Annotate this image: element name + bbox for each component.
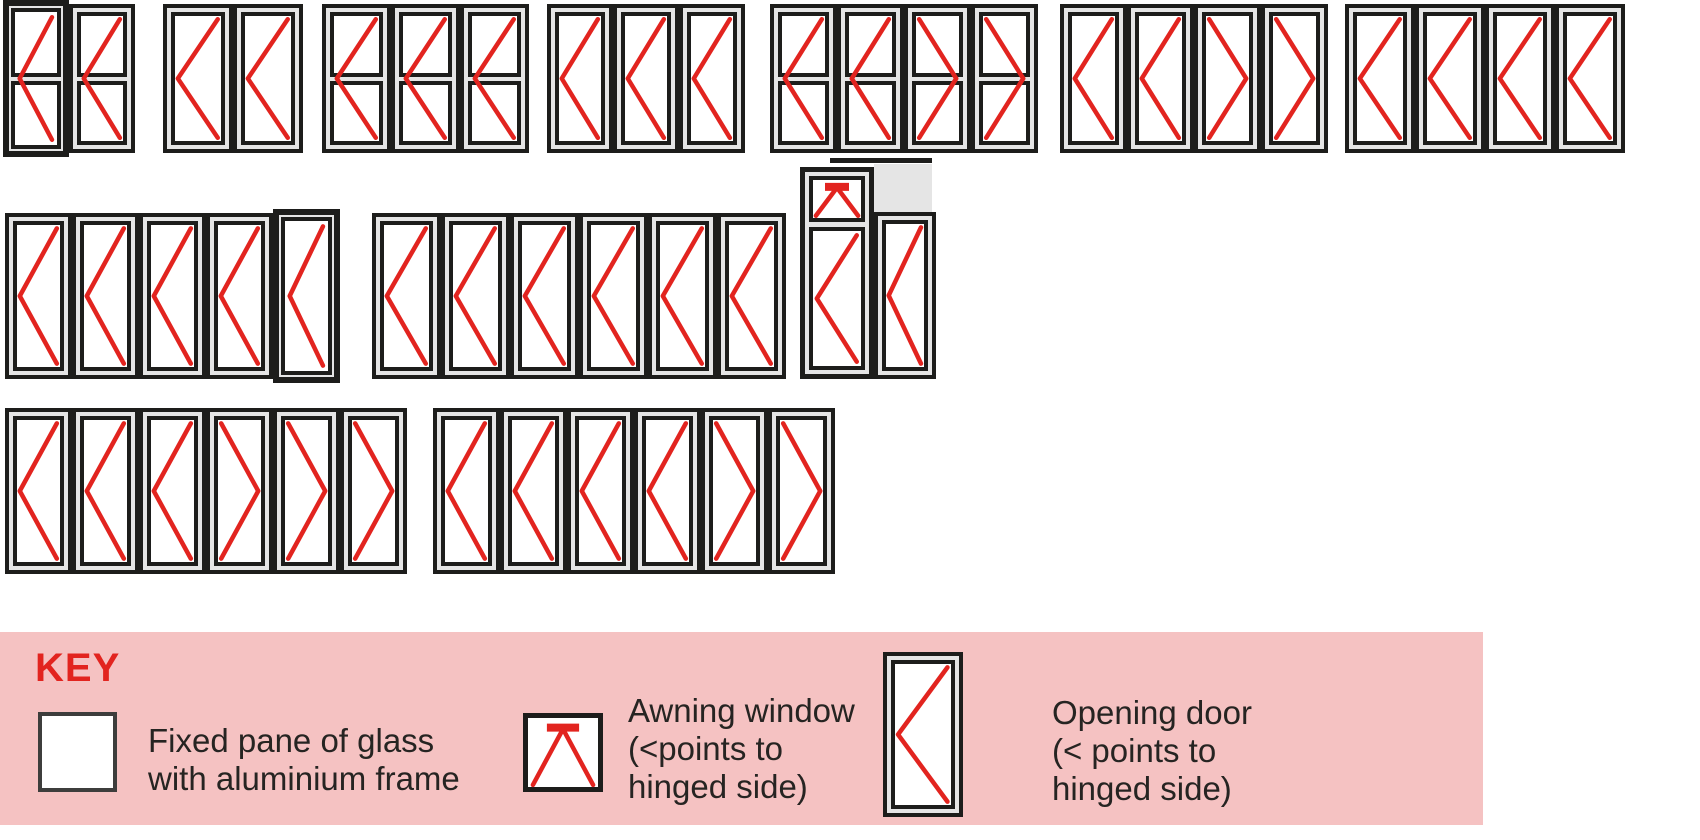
door-panel-hinge-left xyxy=(5,213,72,379)
label-line: with aluminium frame xyxy=(148,760,460,798)
opening-direction-chevron xyxy=(19,16,53,141)
door-panel-hinge-right xyxy=(768,408,835,574)
door-panel-hinge-left xyxy=(717,213,786,379)
opening-direction-chevron xyxy=(83,18,121,139)
awning-window xyxy=(809,176,865,222)
door-panel-hinge-left xyxy=(273,209,340,383)
door-panel-hinge-left xyxy=(322,4,391,153)
door-panel-hinge-right xyxy=(340,408,407,574)
opening-direction-chevron xyxy=(1141,18,1180,139)
toplight-frame-bar xyxy=(830,158,932,163)
door-panel-hinge-left xyxy=(233,4,303,153)
awning-symbol-icon xyxy=(528,718,598,787)
opening-direction-chevron xyxy=(593,227,634,365)
awning-window-label: Awning window (<points to hinged side) xyxy=(628,692,855,806)
door-panel-hinge-left xyxy=(770,4,837,153)
door-panel-hinge-left xyxy=(510,213,579,379)
opening-direction-chevron xyxy=(985,18,1024,139)
opening-direction-chevron xyxy=(1429,18,1471,139)
opening-direction-chevron xyxy=(1074,18,1113,139)
opening-direction-chevron xyxy=(177,18,219,139)
label-line: hinged side) xyxy=(628,768,855,806)
configuration-awning-unit-right-door xyxy=(874,212,936,379)
door-panel-hinge-left xyxy=(809,227,865,370)
opening-direction-chevron xyxy=(715,422,754,560)
opening-direction-chevron xyxy=(731,227,772,365)
door-panel-hinge-left xyxy=(1127,4,1194,153)
door-panel-hinge-left xyxy=(163,4,233,153)
opening-direction-chevron xyxy=(247,18,289,139)
opening-direction-chevron xyxy=(220,227,259,365)
opening-direction-chevron xyxy=(289,225,324,367)
label-line: (< points to xyxy=(1052,732,1252,770)
door-panel-hinge-left xyxy=(883,652,963,817)
door-panel-hinge-left xyxy=(460,4,529,153)
opening-direction-chevron xyxy=(561,18,599,139)
door-panel-hinge-left xyxy=(874,212,936,379)
opening-direction-chevron xyxy=(354,422,393,560)
fixed-aluminium-panel xyxy=(874,164,932,212)
opening-door-symbol xyxy=(883,652,963,817)
opening-direction-chevron xyxy=(405,18,446,139)
opening-direction-chevron xyxy=(153,422,192,560)
label-line: hinged side) xyxy=(1052,770,1252,808)
door-configurations-diagram: KEY Fixed pane of glass with aluminium f… xyxy=(0,0,1700,840)
door-panel-hinge-left xyxy=(441,213,510,379)
door-panel-hinge-left xyxy=(547,4,613,153)
door-panel-hinge-left xyxy=(433,408,500,574)
awning-window-symbol xyxy=(523,713,603,792)
opening-direction-chevron xyxy=(220,422,259,560)
opening-direction-chevron xyxy=(153,227,192,365)
opening-direction-chevron xyxy=(1499,18,1541,139)
door-panel-hinge-left xyxy=(500,408,567,574)
fixed-pane-label: Fixed pane of glass with aluminium frame xyxy=(148,722,460,798)
configuration-2-door-both-left xyxy=(163,4,303,153)
configuration-3-door-midrail-all-left xyxy=(322,4,529,153)
opening-direction-chevron xyxy=(851,18,890,139)
door-panel-hinge-left xyxy=(72,213,139,379)
configuration-2-door-midrail-both-left xyxy=(3,4,135,153)
door-panel-hinge-right xyxy=(904,4,971,153)
configuration-6-door-4-left-2-right xyxy=(433,408,835,574)
door-panel-hinge-left xyxy=(3,0,69,157)
door-panel-hinge-left xyxy=(391,4,460,153)
door-panel-hinge-right xyxy=(971,4,1038,153)
door-panel-hinge-right xyxy=(273,408,340,574)
door-panel-hinge-right xyxy=(206,408,273,574)
opening-direction-chevron xyxy=(514,422,553,560)
opening-direction-chevron xyxy=(86,422,125,560)
door-with-awning-frame xyxy=(800,167,874,379)
opening-direction-chevron xyxy=(693,18,731,139)
opening-door-label: Opening door (< points to hinged side) xyxy=(1052,694,1252,808)
configuration-4-door-2-left-2-right xyxy=(1060,4,1328,153)
door-panel-hinge-right xyxy=(1261,4,1328,153)
opening-direction-chevron xyxy=(627,18,665,139)
opening-direction-chevron xyxy=(447,422,486,560)
door-panel-hinge-left xyxy=(139,213,206,379)
opening-direction-chevron xyxy=(784,18,823,139)
key-title: KEY xyxy=(35,646,120,691)
door-panel-hinge-left xyxy=(206,213,273,379)
configuration-6-door-3-left-3-right xyxy=(5,408,407,574)
opening-direction-chevron xyxy=(86,227,125,365)
label-line: Opening door xyxy=(1052,694,1252,732)
configuration-4-door-all-left xyxy=(1345,4,1625,153)
opening-direction-chevron xyxy=(386,227,427,365)
opening-direction-chevron xyxy=(1208,18,1247,139)
configuration-5-door-all-left xyxy=(5,213,340,379)
opening-direction-chevron xyxy=(581,422,620,560)
opening-direction-chevron xyxy=(782,422,821,560)
door-panel-hinge-left xyxy=(837,4,904,153)
opening-direction-chevron xyxy=(474,18,515,139)
door-panel-hinge-left xyxy=(634,408,701,574)
fixed-pane-symbol xyxy=(38,712,117,792)
door-panel-hinge-right xyxy=(1194,4,1261,153)
opening-direction-chevron xyxy=(897,666,949,803)
door-panel-hinge-left xyxy=(69,4,135,153)
opening-direction-chevron xyxy=(918,18,957,139)
opening-direction-chevron xyxy=(662,227,703,365)
configuration-6-door-all-left xyxy=(372,213,786,379)
opening-direction-chevron xyxy=(287,422,326,560)
door-panel-hinge-left xyxy=(613,4,679,153)
label-line: (<points to xyxy=(628,730,855,768)
opening-direction-chevron xyxy=(1569,18,1611,139)
door-panel-hinge-left xyxy=(72,408,139,574)
door-panel-hinge-left xyxy=(1555,4,1625,153)
door-panel-hinge-left xyxy=(1060,4,1127,153)
door-panel-hinge-left xyxy=(139,408,206,574)
opening-direction-chevron xyxy=(524,227,565,365)
label-line: Fixed pane of glass xyxy=(148,722,460,760)
door-panel-hinge-left xyxy=(1485,4,1555,153)
door-panel-hinge-left xyxy=(1345,4,1415,153)
door-panel-hinge-left xyxy=(648,213,717,379)
opening-direction-chevron xyxy=(19,227,58,365)
opening-direction-chevron xyxy=(1359,18,1401,139)
door-panel-hinge-left xyxy=(5,408,72,574)
door-panel-hinge-right xyxy=(701,408,768,574)
opening-direction-chevron xyxy=(816,234,858,363)
door-panel-hinge-left xyxy=(567,408,634,574)
key-legend: KEY Fixed pane of glass with aluminium f… xyxy=(0,632,1483,825)
configuration-4-door-midrail-2-left-2-right xyxy=(770,4,1038,153)
door-panel-hinge-left xyxy=(679,4,745,153)
opening-direction-chevron xyxy=(648,422,687,560)
opening-direction-chevron xyxy=(336,18,377,139)
door-panel-hinge-left xyxy=(579,213,648,379)
opening-direction-chevron xyxy=(888,226,922,365)
door-panel-hinge-left xyxy=(1415,4,1485,153)
opening-direction-chevron xyxy=(455,227,496,365)
configuration-3-door-all-left xyxy=(547,4,745,153)
opening-direction-chevron xyxy=(19,422,58,560)
opening-direction-chevron xyxy=(1275,18,1314,139)
awning-symbol-icon xyxy=(813,180,861,218)
door-panel-hinge-left xyxy=(372,213,441,379)
label-line: Awning window xyxy=(628,692,855,730)
